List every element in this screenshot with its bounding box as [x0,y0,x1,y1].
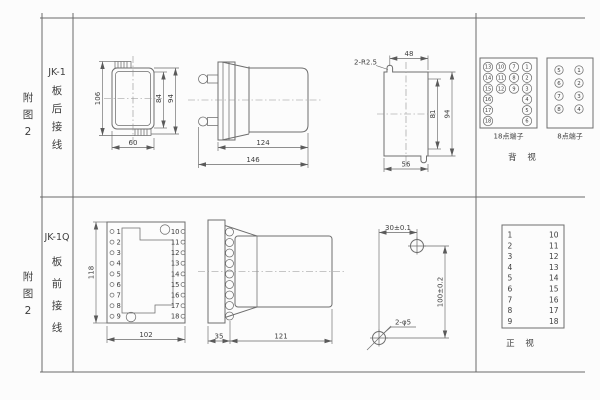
terminal-number: 3 [525,86,528,92]
terminal-table: 1 2 3 4 5 6 7 8 9 10 11 12 13 14 15 16 1… [502,225,564,349]
wiring-char: 接 [52,299,63,312]
table-number: 11 [549,241,559,250]
panel-terminal-number: 13 [171,260,180,268]
terminal-number: 11 [498,76,504,82]
table-number: 8 [508,306,513,315]
rear-view-label: 背 视 [508,152,540,163]
radius-note: 2-R2.5 [354,59,377,67]
dim-label-94: 94 [167,94,175,103]
panel-terminal-number: 8 [117,302,121,310]
panel-terminal-number: 1 [117,228,121,236]
terminal-number: 10 [498,65,504,71]
panel-cutout-drawing: 48 2-R2.5 81 94 56 [354,50,456,172]
terminal-number: 14 [485,76,491,82]
table-number: 7 [508,295,513,304]
table-number: 17 [549,306,559,315]
wiring-char: 后 [52,103,63,115]
terminal-number: 17 [485,108,491,114]
fig-char: 2 [25,305,32,317]
panel-terminal-number: 2 [117,239,121,247]
wiring-char: 线 [52,321,63,334]
panel-terminal-number: 10 [171,228,180,236]
table-number: 9 [508,317,513,326]
terminal-number: 2 [525,76,528,82]
table-number: 13 [549,263,559,272]
terminal-number: 8 [512,76,515,82]
terminal-number: 13 [485,65,491,71]
terminal-number: 1 [525,65,528,71]
terminal-number: 2 [577,81,581,87]
wiring-char: 板 [52,84,63,97]
dim-label-81: 81 [429,110,437,119]
terminal-number: 15 [485,86,491,92]
wiring-char: 前 [52,277,63,290]
front-view-label: 正 视 [506,338,538,349]
table-number: 14 [549,274,559,283]
model-name: JK-1Q [44,232,70,243]
dim-label-102: 102 [139,331,152,339]
dim-label-48: 48 [405,50,414,58]
table-number: 2 [508,241,513,250]
terminal-block-8: 5 6 7 8 1 2 3 4 8点端子 [547,58,593,141]
terminal-number: 7 [557,94,561,100]
dim-label-30: 30±0.1 [385,224,411,232]
side-view-drawing-jk1q: 35 121 [198,220,346,344]
panel-terminal-number: 17 [171,302,180,310]
dim-label-146: 146 [246,156,260,164]
table-number: 16 [549,295,559,304]
panel-terminal-number: 15 [171,281,180,289]
terminal-number: 18 [485,119,491,125]
dim-label-60: 60 [129,139,138,147]
model-name: JK-1 [47,67,66,78]
terminal-number: 3 [577,94,581,100]
panel-terminal-number: 9 [117,313,121,321]
table-number: 18 [549,317,559,326]
terminal-number: 4 [577,107,581,113]
row1-figure-label: 附 图 2 [23,91,34,138]
hole-note: 2-φ5 [395,319,411,327]
row2-figure-label: 附 图 2 [23,270,34,317]
panel-terminal-number: 12 [171,249,180,257]
panel-terminal-number: 7 [117,292,121,300]
terminal-number: 5 [557,68,561,74]
table-number: 4 [508,263,513,272]
wiring-char: 线 [52,138,63,151]
table-number: 1 [508,231,513,240]
terminal-number: 12 [498,86,504,92]
terminal-number: 9 [512,86,515,92]
fig-char: 附 [23,91,34,104]
dim-label-118: 118 [88,266,96,279]
fig-char: 图 [23,109,34,121]
drilling-plan-drawing: 30±0.1 100±0.2 2-φ5 [367,224,449,350]
side-view-drawing-jk1: 124 146 [188,62,322,168]
terminal-number: 16 [485,97,491,103]
table-number: 10 [549,231,559,240]
terminal-number: 1 [577,68,581,74]
terminal-number: 8 [557,107,561,113]
terminal-number: 6 [557,81,561,87]
rear-view-drawing: 106 84 94 60 [94,56,179,150]
panel-terminal-number: 14 [171,270,180,278]
fig-char: 图 [23,288,34,300]
front-panel-drawing: 1 2 3 4 5 6 7 8 9 10 11 12 13 14 15 16 1… [88,222,186,343]
panel-terminal-number: 3 [117,249,121,257]
panel-terminal-number: 18 [171,313,180,321]
panel-terminal-number: 16 [171,292,180,300]
wiring-char: 接 [52,120,63,133]
dim-label-56: 56 [402,161,411,169]
dim-label-94b: 94 [444,109,452,118]
terminal-number: 7 [512,65,515,71]
terminal-18-label: 18点端子 [494,132,524,141]
wiring-char: 板 [52,255,63,268]
terminal-number: 4 [525,97,528,103]
row1-model-label: JK-1 板 后 接 线 [47,67,66,151]
table-number: 12 [549,252,559,261]
panel-terminal-number: 5 [117,270,121,278]
dim-label-35: 35 [215,333,224,341]
table-number: 5 [508,274,513,283]
table-number: 15 [549,285,559,294]
dim-label-121: 121 [274,333,287,341]
drawing-canvas: 附 图 2 JK-1 板 后 接 线 106 84 94 6 [0,0,600,400]
terminal-8-label: 8点端子 [557,132,582,141]
row2-model-label: JK-1Q 板 前 接 线 [44,232,70,334]
terminal-block-18: 13 14 15 16 17 18 10 11 12 7 8 9 1 2 3 4… [480,58,537,141]
fig-char: 附 [23,270,34,283]
dim-label-124: 124 [256,139,270,147]
dim-label-84: 84 [155,94,163,103]
terminal-number: 6 [525,119,528,125]
fig-char: 2 [25,126,32,138]
panel-terminal-number: 11 [171,239,180,247]
table-number: 6 [508,285,513,294]
panel-terminal-number: 6 [117,281,121,289]
technical-drawing-page: 附 图 2 JK-1 板 后 接 线 106 84 94 6 [0,0,600,400]
terminal-number: 5 [525,108,528,114]
dim-label-106: 106 [94,91,102,105]
panel-terminal-number: 4 [117,260,121,268]
table-number: 3 [508,252,513,261]
dim-label-100: 100±0.2 [437,277,445,307]
